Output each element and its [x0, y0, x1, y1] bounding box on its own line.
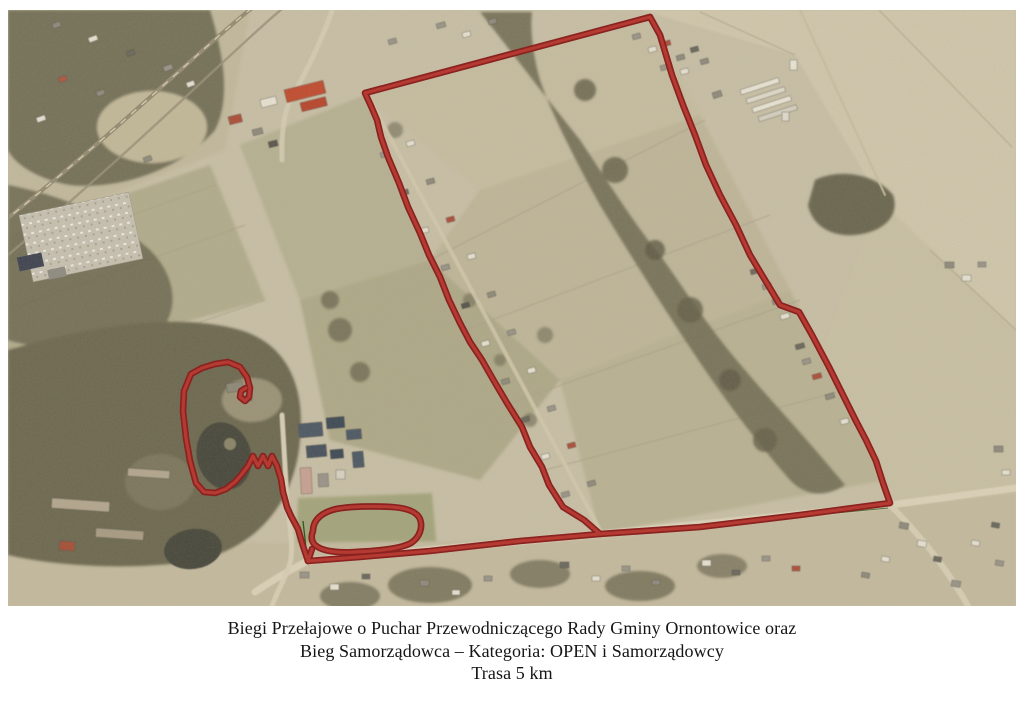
caption: Biegi Przełajowe o Puchar Przewodniczące… — [0, 617, 1024, 685]
scanned-race-map-page: Biegi Przełajowe o Puchar Przewodniczące… — [0, 0, 1024, 724]
aerial-photo — [0, 0, 1024, 724]
photo-grain — [8, 10, 1016, 606]
aerial-map — [0, 0, 1024, 724]
caption-line-3: Trasa 5 km — [0, 662, 1024, 685]
caption-line-2: Bieg Samorządowca – Kategoria: OPEN i Sa… — [0, 640, 1024, 663]
caption-line-1: Biegi Przełajowe o Puchar Przewodniczące… — [0, 617, 1024, 640]
